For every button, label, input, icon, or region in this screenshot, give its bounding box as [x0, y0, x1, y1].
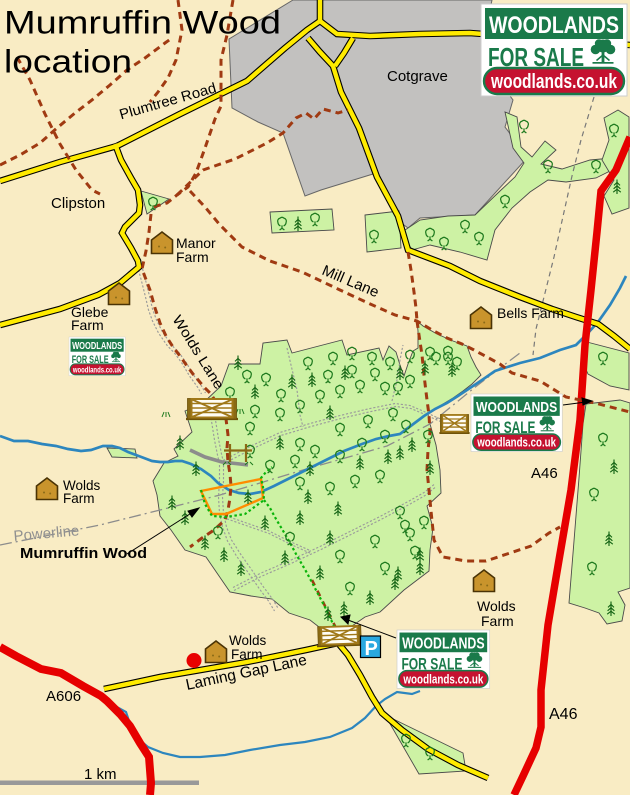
- svg-text:Clipston: Clipston: [51, 195, 105, 212]
- svg-text:Farm: Farm: [231, 647, 263, 662]
- svg-text:Farm: Farm: [176, 249, 209, 265]
- svg-text:Farm: Farm: [71, 317, 104, 333]
- svg-text:location: location: [4, 44, 132, 80]
- svg-text:A606: A606: [46, 688, 81, 705]
- svg-text:Mumruffin Wood: Mumruffin Wood: [20, 545, 147, 562]
- svg-text:Wolds: Wolds: [477, 598, 516, 614]
- svg-text:Mumruffin Wood: Mumruffin Wood: [4, 5, 281, 41]
- svg-text:1 km: 1 km: [84, 766, 117, 783]
- svg-text:Cotgrave: Cotgrave: [387, 68, 448, 85]
- svg-text:Farm: Farm: [481, 613, 514, 629]
- svg-text:A46: A46: [549, 706, 578, 723]
- svg-text:Bells Farm: Bells Farm: [497, 305, 564, 321]
- svg-text:A46: A46: [531, 465, 558, 482]
- svg-text:Farm: Farm: [63, 491, 95, 506]
- svg-text:Wolds: Wolds: [229, 633, 267, 648]
- svg-text:P: P: [365, 638, 378, 660]
